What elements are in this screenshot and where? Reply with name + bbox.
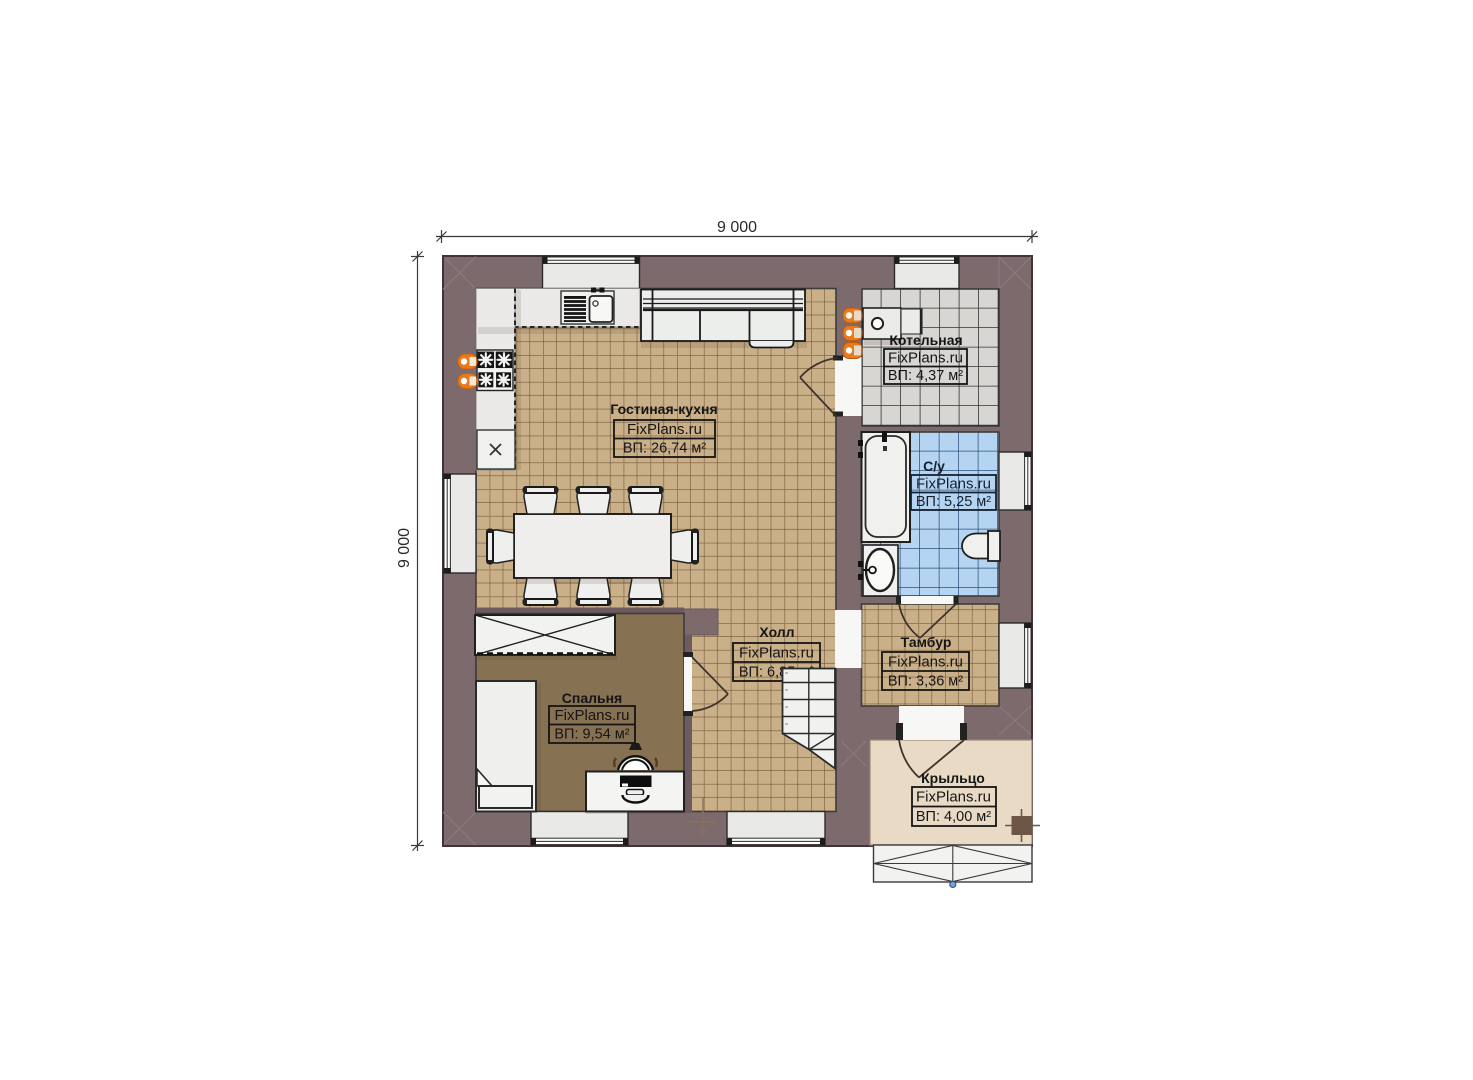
svg-text:Котельная: Котельная bbox=[889, 332, 962, 348]
svg-text:FixPlans.ru: FixPlans.ru bbox=[916, 789, 991, 806]
svg-text:ВП: 5,25 м²: ВП: 5,25 м² bbox=[916, 494, 991, 510]
svg-text:ВП: 3,36 м²: ВП: 3,36 м² bbox=[888, 674, 963, 690]
svg-text:Крыльцо: Крыльцо bbox=[921, 770, 985, 786]
svg-text:ВП: 9,54 м²: ВП: 9,54 м² bbox=[554, 727, 629, 743]
svg-text:FixPlans.ru: FixPlans.ru bbox=[888, 350, 963, 367]
svg-text:ВП: 4,37 м²: ВП: 4,37 м² bbox=[888, 368, 963, 384]
svg-text:9 000: 9 000 bbox=[717, 219, 757, 236]
svg-text:9 000: 9 000 bbox=[396, 528, 413, 568]
svg-text:FixPlans.ru: FixPlans.ru bbox=[627, 421, 702, 438]
svg-text:Холл: Холл bbox=[759, 624, 794, 640]
svg-text:Гостиная-кухня: Гостиная-кухня bbox=[610, 401, 717, 417]
svg-text:ВП: 26,74 м²: ВП: 26,74 м² bbox=[623, 441, 706, 457]
svg-text:Спальня: Спальня bbox=[562, 690, 622, 706]
svg-text:FixPlans.ru: FixPlans.ru bbox=[888, 654, 963, 671]
svg-text:FixPlans.ru: FixPlans.ru bbox=[916, 476, 991, 493]
svg-text:С/у: С/у bbox=[923, 458, 945, 474]
svg-text:ВП: 4,00 м²: ВП: 4,00 м² bbox=[916, 809, 991, 825]
svg-text:FixPlans.ru: FixPlans.ru bbox=[554, 707, 629, 724]
svg-text:FixPlans.ru: FixPlans.ru bbox=[739, 645, 814, 662]
svg-text:Тамбур: Тамбур bbox=[901, 634, 952, 650]
